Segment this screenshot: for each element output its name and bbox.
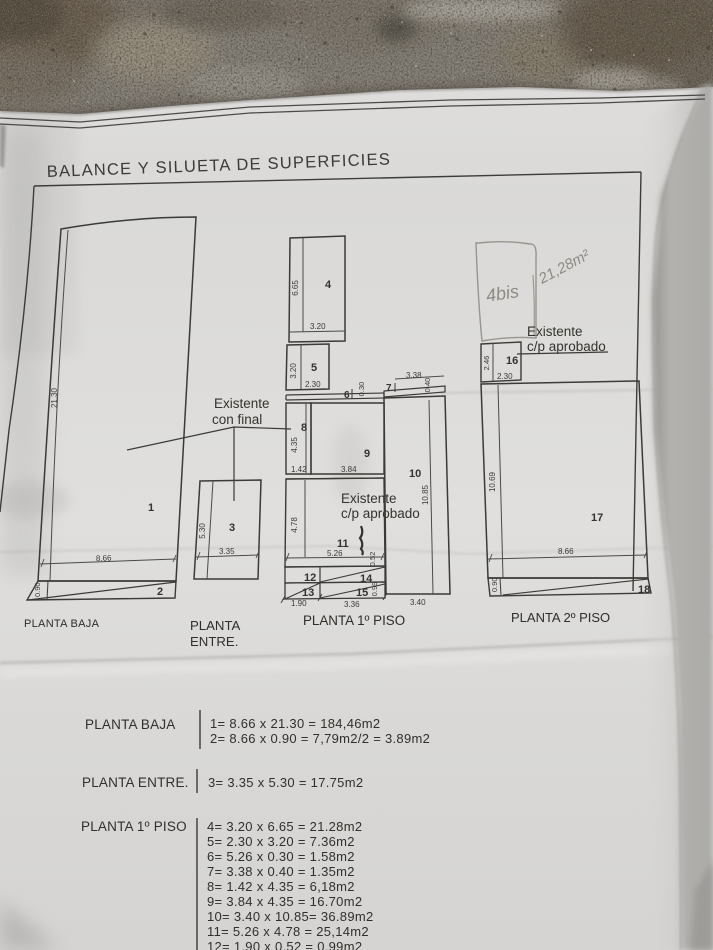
svg-text:0.90: 0.90 (490, 577, 499, 592)
svg-text:13: 13 (302, 587, 314, 599)
svg-text:0.40: 0.40 (423, 378, 432, 393)
svg-text:3.20: 3.20 (289, 363, 298, 379)
svg-text:PLANTA BAJA: PLANTA BAJA (85, 717, 175, 732)
svg-text:10: 10 (409, 468, 421, 480)
svg-text:9: 9 (364, 448, 370, 460)
svg-text:4.78: 4.78 (290, 517, 299, 533)
svg-text:PLANTA 2º PISO: PLANTA 2º PISO (511, 610, 610, 625)
svg-text:3.38: 3.38 (406, 371, 422, 380)
svg-text:8.66: 8.66 (558, 547, 574, 556)
svg-text:ENTRE.: ENTRE. (190, 634, 238, 649)
svg-text:5= 2.30 x 3.20 = 7.36m2: 5= 2.30 x 3.20 = 7.36m2 (207, 834, 355, 849)
svg-text:Existente: Existente (214, 396, 270, 411)
svg-text:0.90: 0.90 (33, 582, 42, 597)
svg-text:6.65: 6.65 (291, 280, 300, 296)
svg-text:10= 3.40 x 10.85= 36.89m2: 10= 3.40 x 10.85= 36.89m2 (207, 909, 374, 924)
svg-text:0.30: 0.30 (357, 382, 366, 397)
svg-text:9= 3.84 x 4.35 = 16.70m2: 9= 3.84 x 4.35 = 16.70m2 (207, 894, 362, 909)
svg-text:3.40: 3.40 (410, 598, 426, 607)
svg-text:2= 8.66 x 0.90 = 7,79m2/2 = 3.: 2= 8.66 x 0.90 = 7,79m2/2 = 3.89m2 (210, 731, 430, 746)
svg-text:8= 1.42 x 4.35 = 6,18m2: 8= 1.42 x 4.35 = 6,18m2 (207, 879, 355, 894)
svg-text:17: 17 (591, 512, 603, 524)
svg-text:5.30: 5.30 (198, 523, 207, 539)
svg-text:16: 16 (506, 355, 518, 367)
svg-text:PLANTA BAJA: PLANTA BAJA (24, 618, 100, 630)
svg-text:c/p aprobado: c/p aprobado (341, 506, 420, 521)
svg-text:1= 8.66 x 21.30 = 184,46m2: 1= 8.66 x 21.30 = 184,46m2 (210, 716, 380, 731)
svg-text:7: 7 (386, 383, 392, 394)
svg-text:PLANTA 1º PISO: PLANTA 1º PISO (303, 613, 405, 628)
svg-text:4= 3.20 x 6.65 = 21.28m2: 4= 3.20 x 6.65 = 21.28m2 (207, 819, 362, 834)
svg-text:5.26: 5.26 (327, 549, 343, 558)
svg-text:6= 5.26 x 0.30 = 1.58m2: 6= 5.26 x 0.30 = 1.58m2 (207, 849, 355, 864)
svg-text:1.42: 1.42 (291, 465, 307, 474)
svg-text:con final: con final (212, 412, 262, 427)
svg-text:8: 8 (301, 422, 307, 434)
svg-text:3.20: 3.20 (310, 322, 326, 331)
svg-text:Existente: Existente (341, 491, 397, 506)
svg-text:4: 4 (325, 279, 332, 291)
svg-text:4.35: 4.35 (290, 437, 299, 453)
svg-text:6: 6 (344, 390, 350, 401)
svg-text:10.85: 10.85 (421, 484, 430, 505)
svg-text:0.99: 0.99 (370, 582, 379, 597)
svg-text:3.35: 3.35 (219, 547, 235, 556)
svg-text:3: 3 (229, 522, 235, 534)
svg-text:Existente: Existente (527, 324, 583, 339)
svg-text:PLANTA ENTRE.: PLANTA ENTRE. (82, 775, 189, 790)
svg-text:2.30: 2.30 (497, 372, 513, 381)
svg-text:10.69: 10.69 (488, 471, 497, 492)
svg-text:18: 18 (638, 584, 650, 596)
svg-text:2.46: 2.46 (482, 356, 491, 371)
svg-text:15: 15 (356, 587, 368, 599)
svg-text:8.66: 8.66 (96, 553, 112, 563)
svg-text:2: 2 (157, 586, 163, 598)
svg-text:2.30: 2.30 (305, 380, 321, 389)
svg-text:3= 3.35 x 5.30 = 17.75m2: 3= 3.35 x 5.30 = 17.75m2 (208, 775, 363, 790)
svg-text:11= 5.26 x 4.78 = 25,14m2: 11= 5.26 x 4.78 = 25,14m2 (207, 924, 369, 939)
svg-text:1.90: 1.90 (291, 599, 307, 608)
svg-text:12= 1.90 x 0.52 = 0.99m2: 12= 1.90 x 0.52 = 0.99m2 (207, 939, 362, 950)
svg-text:3.36: 3.36 (344, 600, 360, 609)
svg-text:7= 3.38 x 0.40 = 1.35m2: 7= 3.38 x 0.40 = 1.35m2 (207, 864, 355, 879)
svg-text:PLANTA 1º PISO: PLANTA 1º PISO (81, 819, 187, 834)
svg-text:PLANTA: PLANTA (190, 618, 241, 633)
svg-text:5: 5 (311, 362, 317, 374)
svg-text:0.52: 0.52 (368, 552, 377, 567)
svg-text:21.30: 21.30 (50, 387, 59, 408)
svg-text:3.84: 3.84 (341, 465, 357, 474)
svg-text:1: 1 (148, 502, 154, 514)
